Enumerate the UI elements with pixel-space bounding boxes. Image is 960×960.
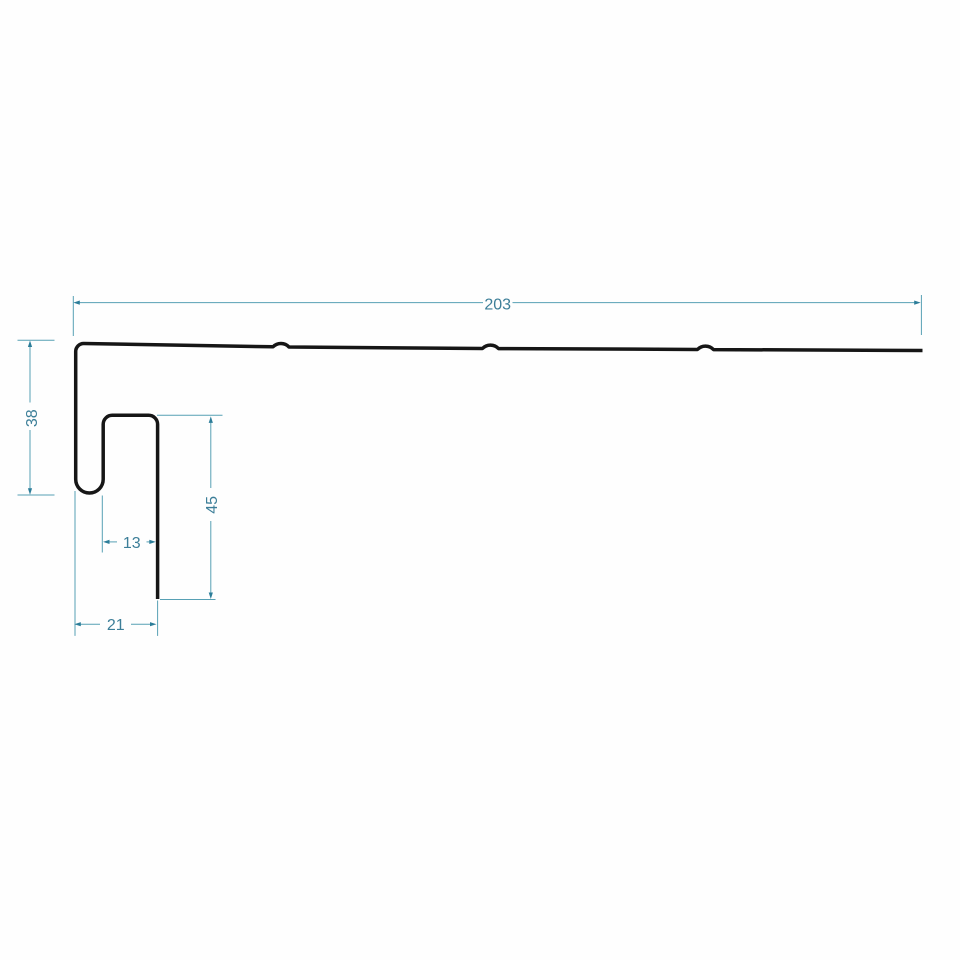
svg-text:13: 13: [123, 535, 141, 552]
svg-text:203: 203: [484, 297, 511, 314]
svg-text:45: 45: [204, 496, 221, 514]
svg-text:38: 38: [24, 409, 41, 427]
svg-text:21: 21: [107, 617, 125, 634]
